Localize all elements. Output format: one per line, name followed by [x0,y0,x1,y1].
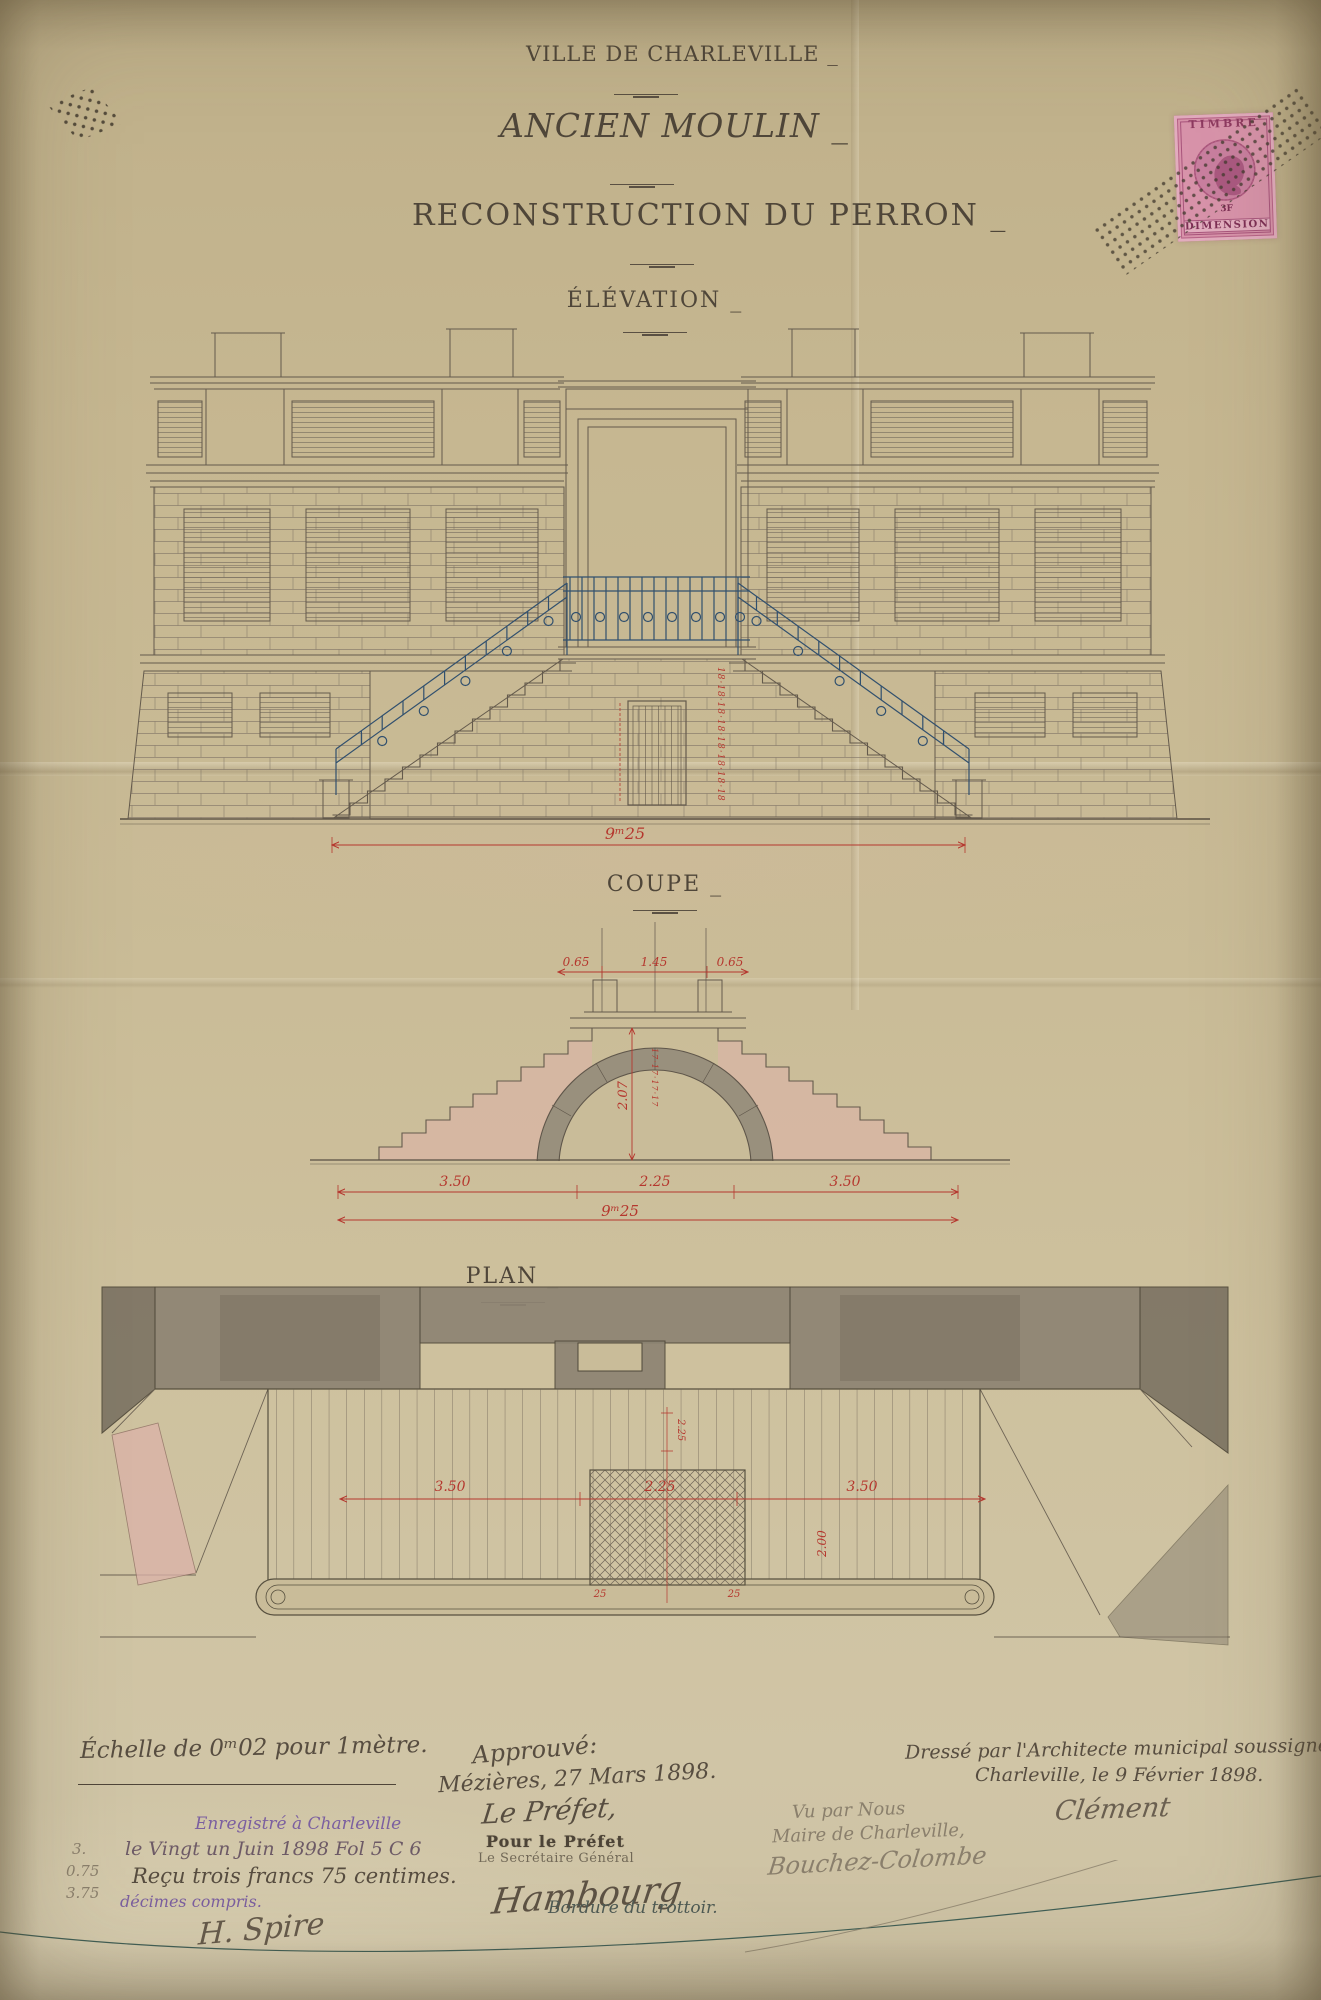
coupe-bottom-right: 3.50 [829,1174,860,1190]
coupe-bottom-left: 3.50 [439,1174,470,1190]
plan-depth: 2.00 [815,1530,829,1558]
architect-signature: Clément [1053,1792,1172,1827]
architect-line2: Charleville, le 9 Février 1898. [975,1764,1263,1786]
plan-center-width-mark: 2.25 [675,1418,686,1441]
plan-grille-mark-right: 25 [727,1589,741,1600]
drawing-sheet: VILLE DE CHARLEVILLE _ ANCIEN MOULIN _ R… [0,0,1321,2000]
scale-underline [78,1784,396,1785]
mayor-line1: Vu par Nous [792,1798,906,1823]
architect-line1: Dressé par l'Architecte municipal soussi… [905,1734,1321,1764]
title-divider-2 [610,184,674,191]
registration-line2: le Vingt un Juin 1898 Fol 5 C 6 [125,1838,422,1860]
coupe-dim-center: 1.45 [641,955,668,969]
sheet-title-project: RECONSTRUCTION DU PERRON _ [412,198,912,233]
elevation-riser-marks: 18·18·18·18·18·18·18·18 [715,667,725,802]
section-label-elevation: ÉLÉVATION _ [535,288,775,313]
coupe-divider [633,910,697,917]
coupe-riser-marks: 17·17·17·17 [650,1048,659,1107]
plan-dim-left: 3.50 [434,1479,465,1495]
plan-dim-right: 3.50 [846,1479,877,1495]
coupe-total-width: 9ᵐ25 [601,1202,639,1220]
elevation-total-width: 9ᵐ25 [605,824,645,843]
section-drawing-coupe: 0.65 1.45 0.65 2.07 17·17·17·17 [300,920,1020,1240]
elevation-drawing: 18·18·18·18·18·18·18·18 9ᵐ25 [120,325,1210,865]
sidewalk-border-line [0,1860,1321,2000]
section-label-coupe: COUPE _ [545,872,785,897]
registration-margin-1: 3. [72,1840,86,1858]
approval-word: Approuvé: [471,1731,598,1770]
scale-note: Échelle de 0ᵐ02 pour 1mètre. [80,1732,428,1764]
coupe-dim-left: 0.65 [563,955,590,969]
title-divider-3 [630,264,694,271]
coupe-bottom-center: 2.25 [638,1174,670,1190]
plan-dim-center: 2.25 [643,1479,675,1495]
prefect-stamp-line1: Pour le Préfet [486,1832,625,1851]
bordure-label: Bordure du trottoir. [548,1898,718,1918]
sheet-title-city: VILLE DE CHARLEVILLE _ [526,42,776,66]
plan-grille-mark-left: 25 [593,1589,607,1600]
sheet-title-building: ANCIEN MOULIN _ [500,106,790,145]
cancellation-dots-top-left [40,77,129,150]
prefect-title: Le Préfet, [480,1792,619,1830]
plan-drawing: 2.25 3.50 2.25 3.50 2.00 25 25 [100,1285,1230,1705]
registration-stamp-line1: Enregistré à Charleville [195,1814,401,1834]
coupe-dim-right: 0.65 [717,955,744,969]
title-divider-1 [614,94,678,101]
coupe-arch-height: 2.07 [616,1080,631,1111]
